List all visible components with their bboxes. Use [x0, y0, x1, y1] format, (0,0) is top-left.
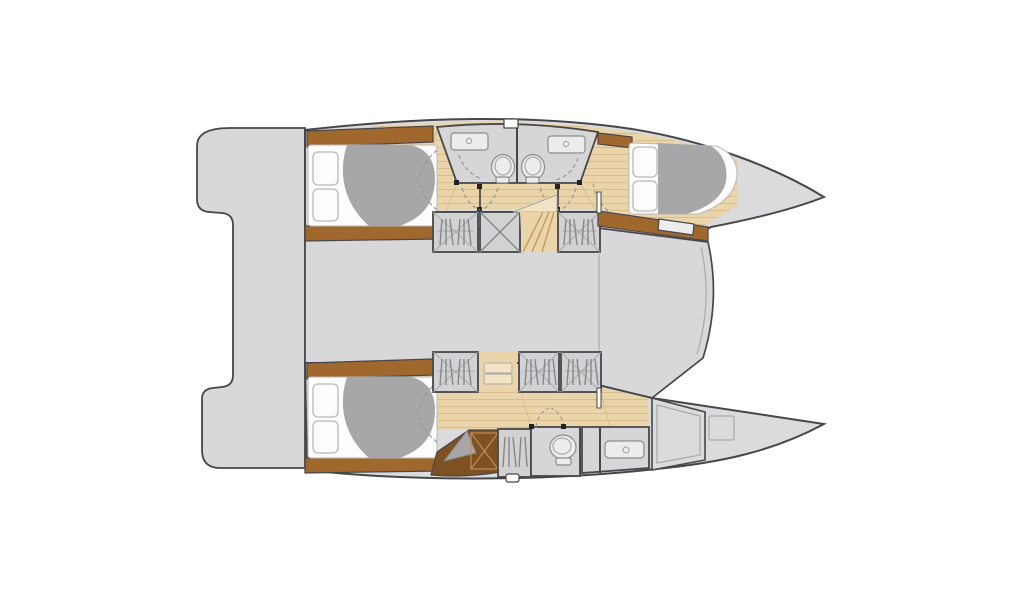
catamaran-floor-plan: [0, 0, 1024, 600]
wardrobe-mid: [519, 352, 559, 392]
hinge-dot: [577, 180, 582, 185]
hinge-dot: [555, 184, 560, 189]
hinge-dot: [561, 424, 566, 429]
wardrobe-forward: [561, 352, 601, 392]
wardrobe-aft: [433, 212, 478, 252]
headboard-trim: [307, 359, 433, 379]
sink-port: [451, 133, 488, 150]
foot-trim: [305, 224, 437, 241]
stern-crossbeam: [197, 128, 305, 468]
wardrobe-aft: [433, 352, 478, 392]
hinge-dot: [529, 424, 534, 429]
starboard-hull: [305, 352, 824, 482]
pillow: [313, 152, 338, 185]
sink-counter: [605, 441, 644, 458]
shower-sink-room: [580, 427, 649, 474]
wardrobe-tab: [506, 474, 519, 482]
toilet-tank: [556, 458, 571, 465]
pillow: [313, 421, 338, 453]
sink-starboard: [548, 136, 585, 153]
twin-bathrooms: [437, 119, 598, 185]
locker-x-box: [480, 212, 520, 252]
deck-hatch: [504, 119, 518, 128]
pillow: [313, 189, 338, 221]
port-hull: [305, 119, 824, 252]
beam-bar-port: [597, 192, 601, 213]
toilet-tank: [526, 177, 539, 183]
foot-trim: [305, 456, 437, 473]
wardrobe-forward: [558, 212, 600, 252]
pillow: [633, 181, 657, 211]
toilet-tank: [496, 177, 509, 183]
pillow: [313, 384, 338, 417]
hinge-dot: [454, 180, 459, 185]
floor-plan-canvas: [0, 0, 1024, 600]
companionway-stairs: [479, 352, 517, 392]
pillow: [633, 147, 657, 177]
starboard-wardrobe-row: [433, 352, 601, 392]
hinge-dot: [477, 184, 482, 189]
starboard-aft-cabin: [305, 359, 437, 473]
beam-bar-starboard: [597, 388, 601, 408]
bathroom-wardrobe: [498, 429, 531, 482]
